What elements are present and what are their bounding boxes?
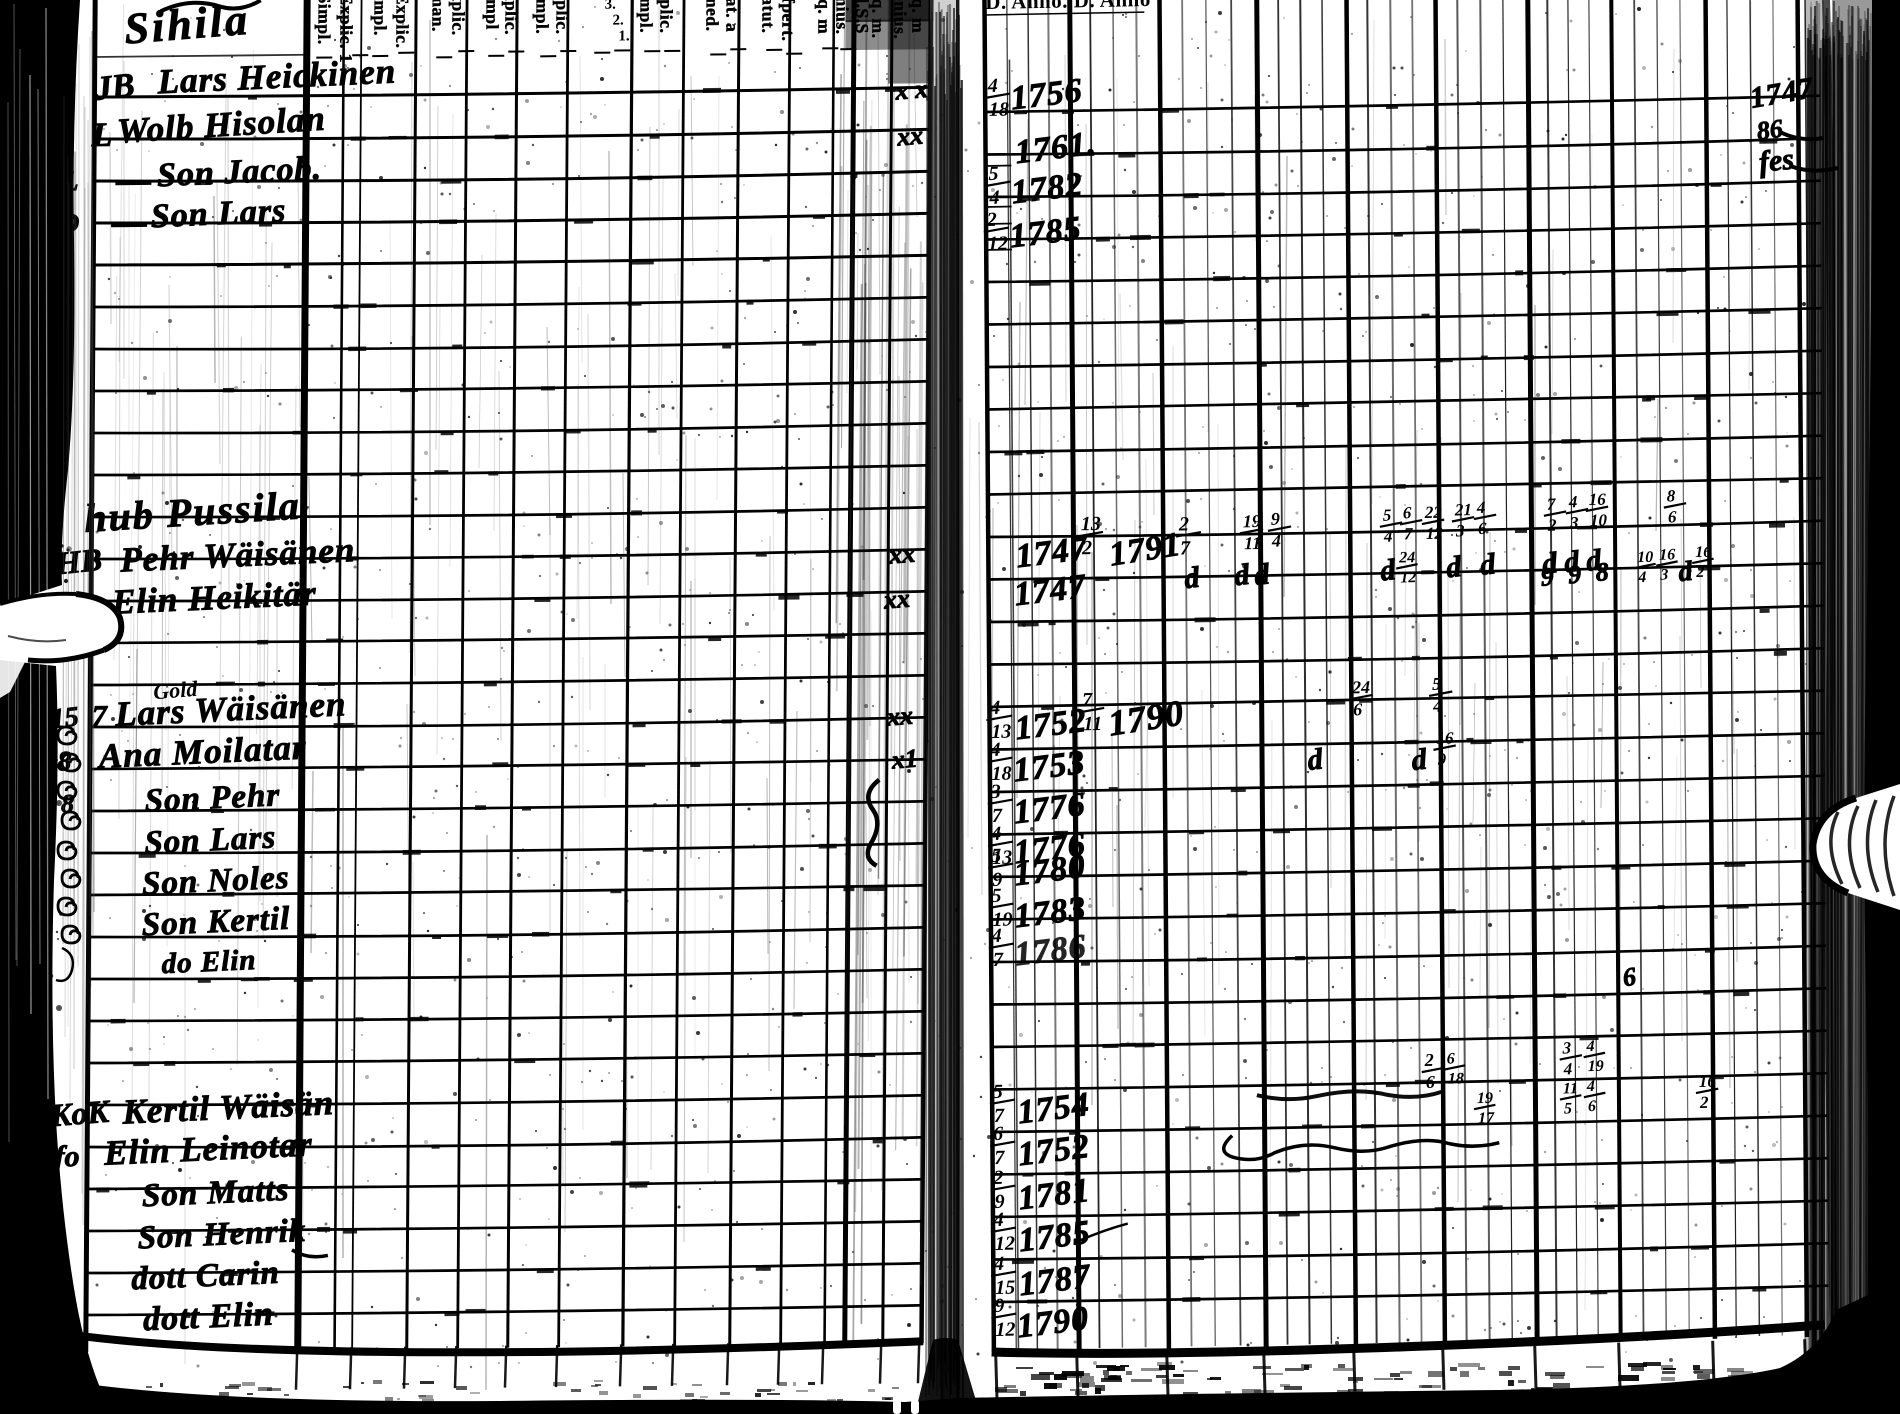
svg-text:17: 17 <box>1478 1110 1495 1127</box>
svg-text:Impl.: Impl. <box>370 0 390 36</box>
svg-text:19: 19 <box>1243 511 1261 531</box>
svg-text:Impl.: Impl. <box>636 0 656 33</box>
svg-text:2.: 2. <box>612 12 624 28</box>
svg-text:16: 16 <box>1436 728 1454 747</box>
svg-text:24: 24 <box>1351 677 1370 697</box>
svg-text:11: 11 <box>1083 713 1102 735</box>
svg-text:4: 4 <box>1568 492 1578 511</box>
svg-text:4: 4 <box>989 187 1000 209</box>
svg-text:man.: man. <box>428 0 448 32</box>
svg-text:Son Lars: Son Lars <box>150 192 287 235</box>
svg-text:6: 6 <box>1478 519 1487 538</box>
svg-text:xx: xx <box>887 539 916 570</box>
svg-text:9: 9 <box>994 1295 1004 1317</box>
svg-text:16: 16 <box>1699 1072 1717 1091</box>
svg-text:2: 2 <box>1178 513 1189 535</box>
svg-text:4: 4 <box>993 1253 1004 1275</box>
svg-text:Son Henrik: Son Henrik <box>137 1213 307 1257</box>
svg-text:3: 3 <box>990 781 1001 803</box>
svg-text:Explic.: Explic. <box>392 0 412 48</box>
svg-text:KoK: KoK <box>48 1093 112 1134</box>
svg-text:efpert.: efpert. <box>778 0 798 41</box>
svg-text:5: 5 <box>1383 506 1392 525</box>
svg-text:12: 12 <box>995 1233 1015 1255</box>
svg-text:9: 9 <box>1438 750 1447 769</box>
svg-text:Simpl.: Simpl. <box>314 0 334 45</box>
svg-text:4: 4 <box>1637 569 1646 586</box>
svg-text:6: 6 <box>1353 699 1362 719</box>
svg-text:1.: 1. <box>618 28 630 44</box>
svg-text:2: 2 <box>1695 564 1704 581</box>
svg-text:18: 18 <box>1448 1070 1464 1087</box>
svg-text:4: 4 <box>1271 531 1281 551</box>
svg-text:7: 7 <box>1180 537 1191 559</box>
svg-text:12: 12 <box>1400 569 1416 586</box>
svg-text:xplic.: xplic. <box>552 0 572 35</box>
svg-text:3: 3 <box>1455 521 1465 540</box>
svg-text:Son Lars: Son Lars <box>144 819 277 861</box>
svg-text:4: 4 <box>989 739 1000 761</box>
svg-text:x1: x1 <box>890 744 919 775</box>
svg-text:2: 2 <box>1081 537 1092 559</box>
svg-text:7: 7 <box>993 949 1004 971</box>
svg-text:4: 4 <box>1476 498 1486 517</box>
svg-text:xx: xx <box>882 584 911 615</box>
svg-text:2: 2 <box>1699 1093 1709 1112</box>
svg-text:5: 5 <box>991 885 1001 907</box>
svg-text:Iatut.: Iatut. <box>758 0 778 33</box>
svg-text:4: 4 <box>1586 1038 1595 1055</box>
svg-text:24: 24 <box>1398 549 1415 566</box>
svg-text:6: 6 <box>1403 503 1412 522</box>
svg-text:6: 6 <box>993 1123 1003 1145</box>
svg-text:12: 12 <box>1426 524 1444 543</box>
svg-text:4: 4 <box>989 697 1000 719</box>
svg-text:do Elin: do Elin <box>161 944 257 980</box>
svg-text:xx: xx <box>895 121 924 152</box>
svg-text:4: 4 <box>987 75 998 97</box>
svg-text:rat. a: rat. a <box>722 0 742 32</box>
svg-text:7: 7 <box>1082 689 1093 711</box>
svg-text:5: 5 <box>988 163 998 185</box>
svg-text:4: 4 <box>991 925 1002 947</box>
svg-text:Son Kertil: Son Kertil <box>141 901 290 944</box>
svg-text:8: 8 <box>1667 486 1676 505</box>
svg-text:21: 21 <box>1454 500 1472 519</box>
svg-text:xplic.: xplic. <box>448 0 468 36</box>
svg-text:Son Noles: Son Noles <box>142 860 290 903</box>
svg-text:19: 19 <box>1477 1090 1493 1107</box>
svg-text:6: 6 <box>1426 1072 1435 1092</box>
svg-text:5: 5 <box>1432 674 1441 694</box>
svg-text:16: 16 <box>1695 544 1711 561</box>
svg-text:Son Matts: Son Matts <box>141 1172 289 1215</box>
svg-text:3.: 3. <box>605 0 617 13</box>
svg-text:11: 11 <box>1244 533 1261 553</box>
svg-text:12: 12 <box>995 1319 1015 1341</box>
svg-text:xplic.: xplic. <box>656 0 676 33</box>
svg-text:Impl.: Impl. <box>532 0 552 34</box>
svg-text:L: L <box>91 117 113 154</box>
svg-text:ened.: ened. <box>702 0 722 32</box>
svg-text:Impl: Impl <box>482 0 502 30</box>
svg-text:Son Jacob.: Son Jacob. <box>157 150 323 194</box>
svg-text:16: 16 <box>1659 546 1675 563</box>
svg-text:4: 4 <box>1586 1078 1595 1095</box>
svg-text:86: 86 <box>1755 114 1785 146</box>
svg-text:10: 10 <box>1637 549 1653 566</box>
svg-text:liq. m: liq. m <box>814 0 834 34</box>
svg-text:3: 3 <box>1659 567 1668 584</box>
svg-text:4: 4 <box>990 823 1001 845</box>
svg-text:9: 9 <box>1271 509 1280 529</box>
svg-text:12: 12 <box>988 233 1008 255</box>
svg-text:xx: xx <box>885 701 914 732</box>
svg-text:Son Pehr: Son Pehr <box>144 777 281 819</box>
svg-text:4: 4 <box>1383 527 1393 546</box>
svg-text:4: 4 <box>993 1209 1004 1231</box>
svg-text:3: 3 <box>1562 1038 1572 1057</box>
svg-text:5: 5 <box>993 1081 1003 1103</box>
svg-text:16: 16 <box>1589 490 1607 509</box>
svg-text:dott Elin: dott Elin <box>143 1295 275 1338</box>
svg-text:5: 5 <box>991 845 1001 867</box>
svg-text:3: 3 <box>1569 513 1579 532</box>
svg-text:2: 2 <box>1424 1050 1434 1070</box>
svg-text:6: 6 <box>1668 507 1677 526</box>
svg-text:5: 5 <box>1564 1100 1572 1117</box>
svg-text:6: 6 <box>1447 1051 1455 1068</box>
svg-text:10: 10 <box>1590 511 1608 530</box>
svg-text:2: 2 <box>992 1167 1003 1189</box>
svg-text:22: 22 <box>1424 503 1443 522</box>
svg-text:dott Carin: dott Carin <box>131 1255 280 1298</box>
svg-text:6: 6 <box>1588 1098 1596 1115</box>
svg-text:2: 2 <box>986 209 997 231</box>
svg-text:JB: JB <box>92 67 136 108</box>
svg-text:x x: x x <box>893 74 928 106</box>
svg-text:2: 2 <box>1547 516 1557 535</box>
svg-text:4: 4 <box>1563 1059 1573 1078</box>
svg-text:xplic.: xplic. <box>501 0 521 35</box>
svg-text:19: 19 <box>1588 1058 1604 1075</box>
svg-text:18: 18 <box>989 99 1009 121</box>
svg-text:7: 7 <box>994 1147 1005 1169</box>
svg-text:fes: fes <box>1757 142 1795 178</box>
svg-text:4: 4 <box>1432 696 1442 716</box>
svg-text:11: 11 <box>1563 1080 1578 1097</box>
